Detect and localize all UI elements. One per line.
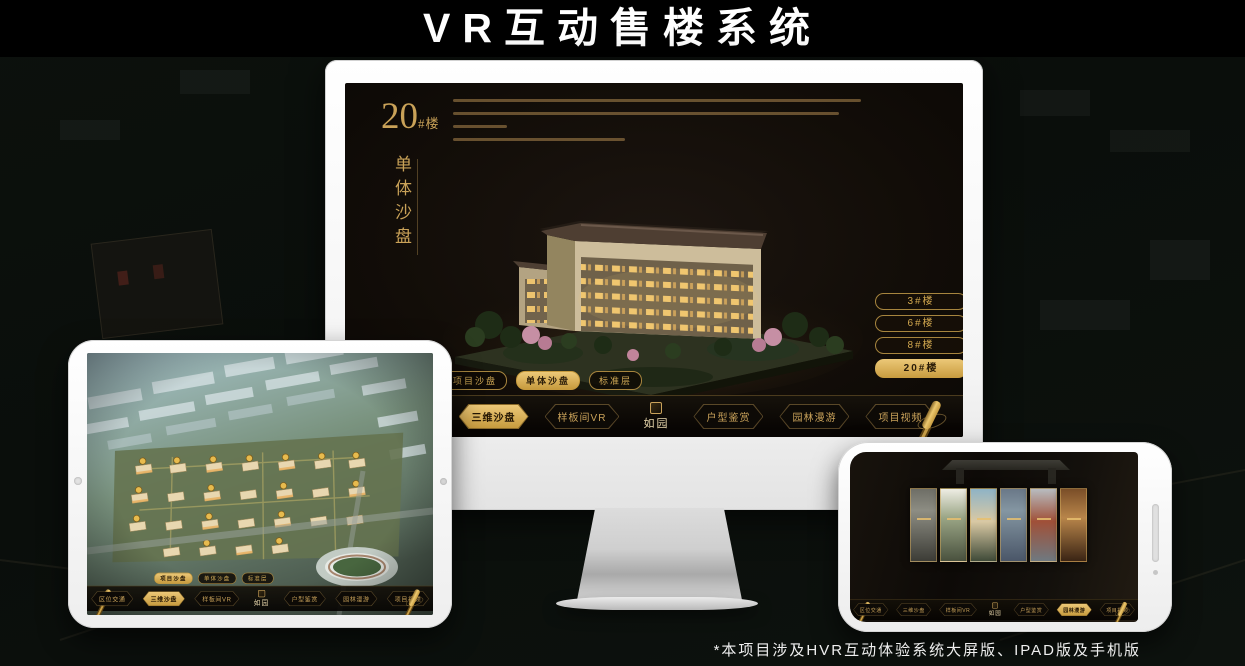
- page-title: VR互动售楼系统: [0, 0, 1245, 56]
- phone-speaker: [1152, 504, 1159, 562]
- gallery-panel-landscape[interactable]: [970, 488, 997, 562]
- ruyuan-logo: 如园: [643, 402, 669, 431]
- phone-navbar: 区位交通 三维沙盘 样板间VR 如园 户型鉴赏 园林漫游 项目视频: [850, 599, 1138, 620]
- nav-item-model-room-vr[interactable]: 样板间VR: [939, 604, 976, 617]
- title-band: VR互动售楼系统: [0, 0, 1245, 57]
- scroll-icon[interactable]: [404, 588, 424, 610]
- phone-bottom-bar: 区位交通 三维沙盘 样板间VR 如园 户型鉴赏 园林漫游 项目视频: [850, 599, 1138, 620]
- nav-item-location-traffic[interactable]: 区位交通: [91, 591, 133, 606]
- footnote-text: *本项目涉及HVR互动体验系统大屏版、IPAD版及手机版: [714, 639, 1141, 660]
- nav-item-3d-sandtable[interactable]: 三维沙盘: [896, 604, 931, 617]
- nav-item-location-traffic[interactable]: 区位交通: [853, 604, 888, 617]
- phone-device: 区位交通 三维沙盘 样板间VR 如园 户型鉴赏 园林漫游 项目视频: [838, 442, 1172, 632]
- ipad-navbar: 区位交通 三维沙盘 样板间VR 如园 户型鉴赏 园林漫游 项目视频: [87, 586, 433, 611]
- nav-item-garden-roam[interactable]: 园林漫游: [779, 404, 849, 429]
- monitor-base: [556, 597, 758, 610]
- stone-gate-decor: [942, 454, 1070, 484]
- gold-divider: [417, 159, 418, 255]
- scroll-icon[interactable]: [915, 399, 949, 435]
- gallery-panels: [910, 488, 1087, 562]
- floor-button-20[interactable]: 20#楼: [875, 359, 963, 378]
- poster-stage: VR互动售楼系统 20#楼 单体沙盘: [0, 0, 1245, 666]
- scroll-icon[interactable]: [1114, 601, 1131, 619]
- nav-item-3d-sandtable[interactable]: 三维沙盘: [459, 404, 529, 429]
- nav-item-unit-appreciation[interactable]: 户型鉴赏: [1014, 604, 1049, 617]
- ipad-device: 项目沙盘 单体沙盘 标准层 区位交通 三维沙盘 样板间VR 如园 户型鉴赏 园林…: [68, 340, 452, 628]
- gallery-panel-garden[interactable]: [940, 488, 967, 562]
- building-number-heading: 20#楼: [381, 98, 440, 135]
- tab-single-sandtable[interactable]: 单体沙盘: [198, 573, 236, 584]
- ipad-camera-icon: [74, 477, 82, 485]
- building-subtitle: 单体沙盘: [389, 155, 414, 285]
- nav-item-garden-roam[interactable]: 园林漫游: [335, 591, 377, 606]
- tab-standard-floor[interactable]: 标准层: [589, 371, 642, 390]
- floor-button-group: 3#楼 6#楼 8#楼 20#楼: [875, 293, 963, 378]
- view-tab-row: 项目沙盘 单体沙盘 标准层: [443, 371, 642, 390]
- nav-item-3d-sandtable[interactable]: 三维沙盘: [143, 591, 185, 606]
- ruyuan-logo: 如园: [989, 603, 1002, 618]
- nav-item-model-room-vr[interactable]: 样板间VR: [545, 404, 620, 429]
- phone-camera-icon: [1153, 570, 1158, 575]
- ruyuan-logo: 如园: [254, 590, 270, 607]
- ipad-screen: 项目沙盘 单体沙盘 标准层 区位交通 三维沙盘 样板间VR 如园 户型鉴赏 园林…: [87, 353, 433, 615]
- phone-screen: 区位交通 三维沙盘 样板间VR 如园 户型鉴赏 园林漫游 项目视频: [850, 452, 1138, 622]
- nav-item-model-room-vr[interactable]: 样板间VR: [194, 591, 239, 606]
- tab-project-sandtable[interactable]: 项目沙盘: [154, 573, 192, 584]
- seal-icon: [650, 402, 662, 414]
- floor-button-6[interactable]: 6#楼: [875, 315, 963, 332]
- building-render: [423, 149, 885, 405]
- description-text-lines: [453, 99, 861, 151]
- seal-icon: [258, 590, 265, 597]
- gallery-panel-building[interactable]: [1000, 488, 1027, 562]
- nav-item-garden-roam[interactable]: 园林漫游: [1057, 604, 1092, 617]
- tab-single-sandtable[interactable]: 单体沙盘: [516, 371, 580, 390]
- floor-button-8[interactable]: 8#楼: [875, 337, 963, 354]
- monitor-stand: [577, 508, 742, 600]
- gallery-panel-courtyard[interactable]: [910, 488, 937, 562]
- background-plaque: [91, 229, 224, 339]
- nav-item-unit-appreciation[interactable]: 户型鉴赏: [284, 591, 326, 606]
- ipad-home-button[interactable]: [440, 478, 447, 485]
- gallery-panel-interior[interactable]: [1060, 488, 1087, 562]
- gallery-panel-autumn[interactable]: [1030, 488, 1057, 562]
- floor-button-3[interactable]: 3#楼: [875, 293, 963, 310]
- nav-item-unit-appreciation[interactable]: 户型鉴赏: [693, 404, 763, 429]
- ipad-view-tab-row: 项目沙盘 单体沙盘 标准层: [154, 573, 433, 584]
- tab-standard-floor[interactable]: 标准层: [242, 573, 274, 584]
- tab-project-sandtable[interactable]: 项目沙盘: [443, 371, 507, 390]
- seal-icon: [992, 603, 998, 609]
- ipad-bottom-bar: 项目沙盘 单体沙盘 标准层 区位交通 三维沙盘 样板间VR 如园 户型鉴赏 园林…: [87, 573, 433, 611]
